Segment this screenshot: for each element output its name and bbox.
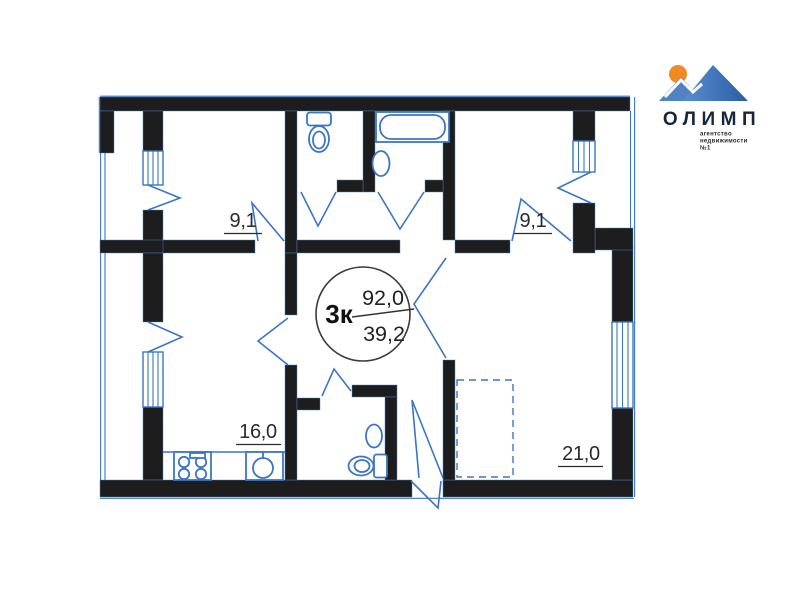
door-livingroom (414, 258, 446, 358)
door-room1 (252, 203, 284, 241)
room-labels: 9,1 9,1 16,0 21,0 (224, 210, 603, 467)
wall-room2-bottom (455, 240, 510, 253)
wall-bath2-top-left (297, 398, 320, 410)
door-kitchen (258, 318, 288, 365)
floor-plan-page: 9,1 9,1 16,0 21,0 3к 92,0 39,2 ОЛИМП аге… (0, 0, 788, 597)
wall-kitchen-loggia-bottom (143, 407, 163, 480)
wall-top (100, 97, 630, 111)
wall-bath-bottom-seg (425, 180, 443, 192)
wall-room2-loggia-pillar-top (573, 111, 595, 141)
logo-tagline-line2: недвижимости (700, 139, 748, 145)
wall-wc-bottom-seg (337, 180, 363, 192)
wall-bottom-right (443, 480, 633, 497)
door-wc (301, 192, 336, 226)
badge-total-area: 92,0 (362, 286, 404, 310)
wall-kitchen-loggia-top (143, 253, 163, 322)
logo: ОЛИМП агентство недвижимости №1 (659, 65, 761, 152)
wardrobe-dashed-outline (457, 380, 513, 477)
wall-wc-bath-divider (363, 111, 375, 192)
mountain-large-icon (683, 65, 748, 101)
window-livingroom (612, 322, 633, 408)
room-label-living-room: 21,0 (562, 443, 600, 465)
room-label-top-left: 9,1 (230, 210, 257, 232)
wall-left-upper (100, 111, 114, 153)
wall-closet-bottom (595, 228, 633, 250)
wall-bottom-left (100, 480, 412, 497)
sink2-icon (366, 425, 382, 448)
stove-icon (174, 452, 211, 480)
room-label-kitchen: 16,0 (239, 421, 277, 443)
wall-room1-bottom (163, 240, 255, 253)
entrance-door-swing-inner (412, 400, 443, 478)
wall-corridor-top (297, 240, 400, 253)
window-kitchen-loggia (143, 352, 163, 407)
wall-room1-loggia-pillar-top (143, 111, 163, 151)
door-room2-loggia (558, 172, 591, 203)
kitchen-sink-icon (246, 452, 283, 480)
toilet-icon (307, 113, 331, 153)
logo-tagline-line1: агентство (700, 132, 732, 138)
room-label-top-right: 9,1 (520, 210, 547, 232)
wall-kitchen-right-top (285, 253, 297, 315)
sink-icon (373, 151, 390, 176)
area-badge: 3к 92,0 39,2 (316, 267, 414, 361)
wall-wc-left (285, 111, 297, 253)
badge-rooms-count: 3к (325, 299, 353, 329)
bathtub-icon (376, 112, 449, 142)
door-kitchen-loggia (148, 322, 182, 352)
wall-right-lower (612, 408, 633, 480)
wall-kitchen-right-bottom (285, 365, 297, 480)
window-room1-loggia (143, 151, 163, 185)
window-room2-loggia (573, 141, 595, 172)
wall-room2-loggia-pillar-bottom (573, 203, 595, 253)
badge-living-area: 39,2 (363, 322, 405, 346)
logo-tagline-line3: №1 (700, 145, 711, 152)
wall-livingroom-left (443, 360, 455, 480)
floor-plan: 9,1 9,1 16,0 21,0 3к 92,0 39,2 ОЛИМП аге… (0, 0, 788, 597)
wall-right-upper (612, 247, 633, 322)
logo-wordmark: ОЛИМП (663, 109, 761, 130)
wall-bath2-top-right (352, 385, 397, 397)
toilet2-icon (349, 455, 388, 478)
door-bath2 (322, 369, 351, 396)
door-room1-loggia (148, 185, 180, 210)
door-bathroom (378, 192, 424, 229)
wall-left-mid (100, 240, 165, 253)
entrance-door-swing-outer (411, 481, 441, 508)
